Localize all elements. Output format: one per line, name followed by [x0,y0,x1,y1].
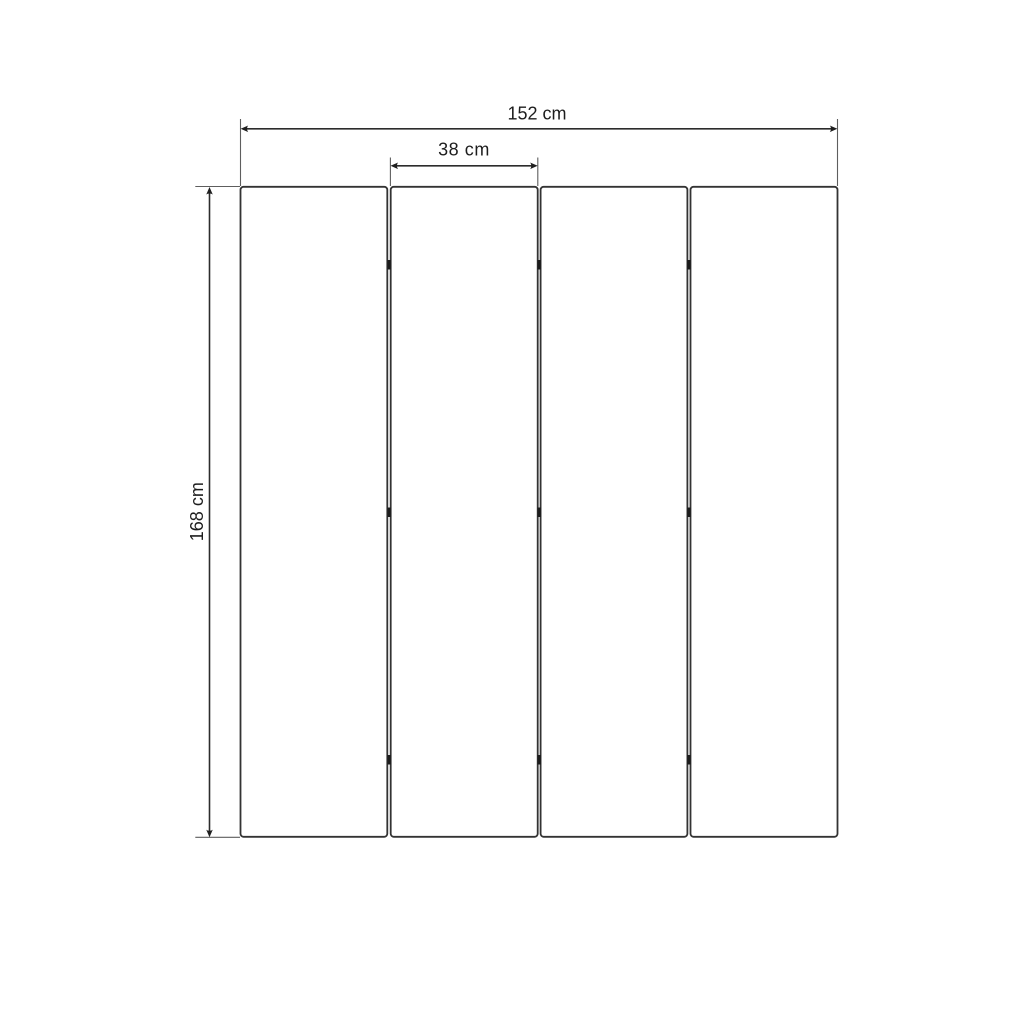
svg-text:152 cm: 152 cm [507,104,566,124]
svg-text:38 cm: 38 cm [438,140,490,160]
svg-text:168 cm: 168 cm [187,482,207,541]
